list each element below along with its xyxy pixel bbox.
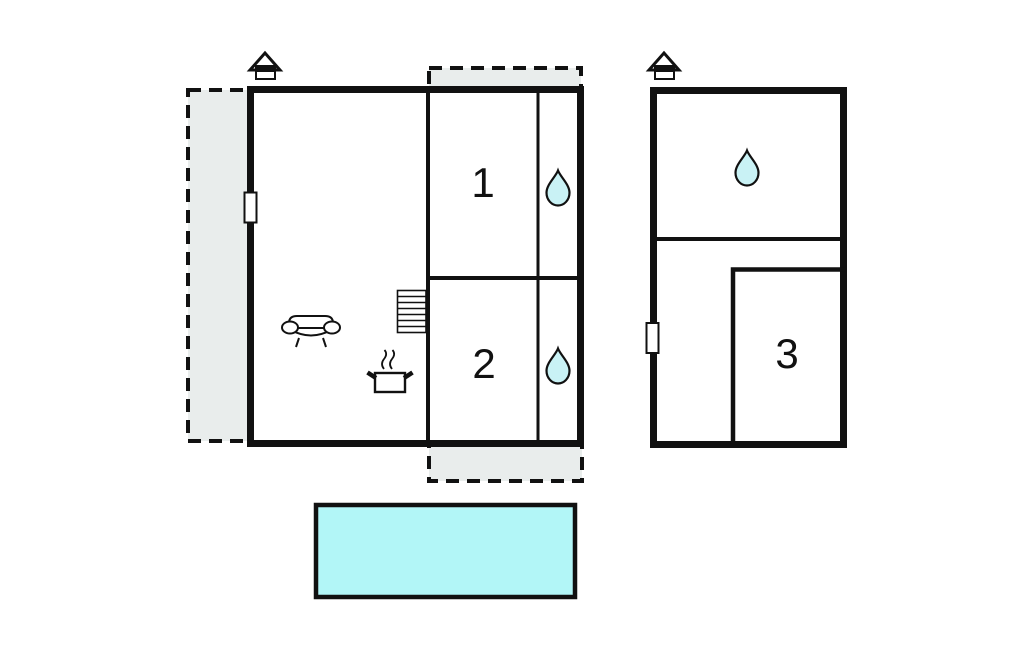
floor-plan-canvas: 1 2 3 bbox=[0, 0, 1024, 652]
house-entrance-icon bbox=[250, 53, 280, 79]
main-entrance-door bbox=[245, 193, 257, 223]
room-2-label: 2 bbox=[472, 340, 495, 387]
main-building-outline bbox=[251, 90, 581, 444]
room-1-label: 1 bbox=[471, 159, 494, 206]
floor-plan: 1 2 3 bbox=[0, 0, 1024, 652]
terrace-left bbox=[188, 90, 250, 441]
room-3-label: 3 bbox=[775, 330, 798, 377]
house-entrance-icon bbox=[649, 53, 679, 79]
swimming-pool bbox=[316, 505, 575, 597]
annex-entrance-door bbox=[647, 323, 659, 353]
stairs-icon bbox=[398, 291, 427, 333]
terrace-bottom bbox=[429, 442, 582, 481]
